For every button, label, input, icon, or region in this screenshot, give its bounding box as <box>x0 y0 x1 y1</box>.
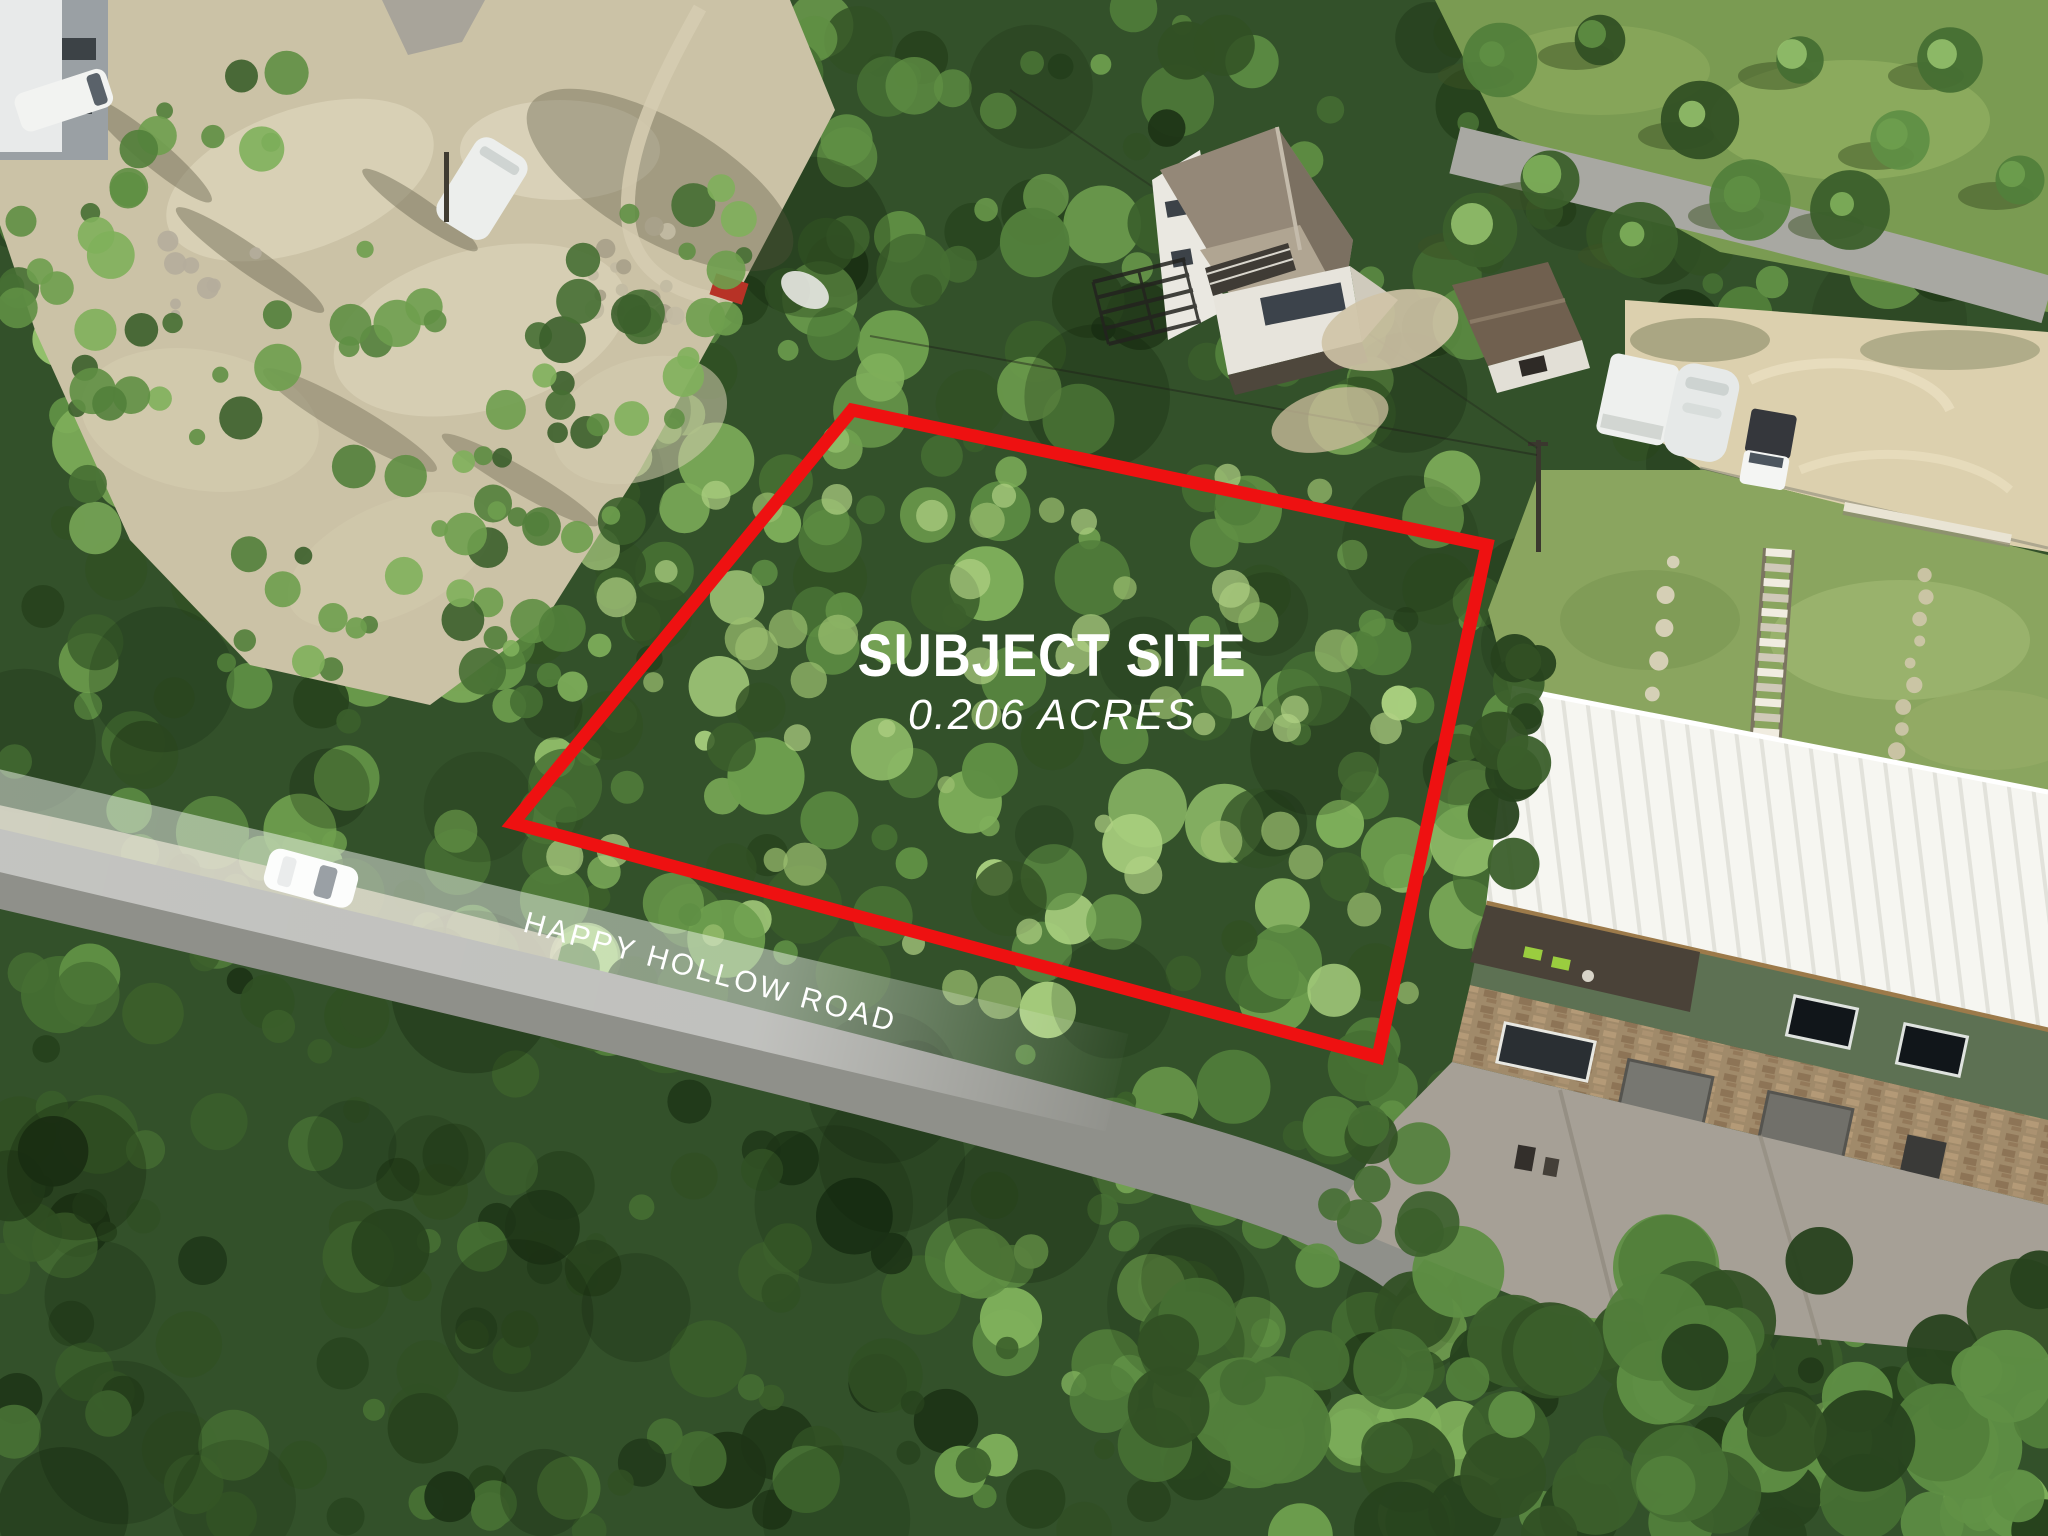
site-acreage-label: 0.206 ACRES <box>852 694 1252 737</box>
site-title-label: SUBJECT SITE <box>832 626 1272 686</box>
pole <box>444 152 449 222</box>
aerial-scene <box>0 0 2048 1536</box>
aerial-photo: SUBJECT SITE 0.206 ACRES HAPPY HOLLOW RO… <box>0 0 2048 1536</box>
utility-pole <box>1536 440 1541 552</box>
